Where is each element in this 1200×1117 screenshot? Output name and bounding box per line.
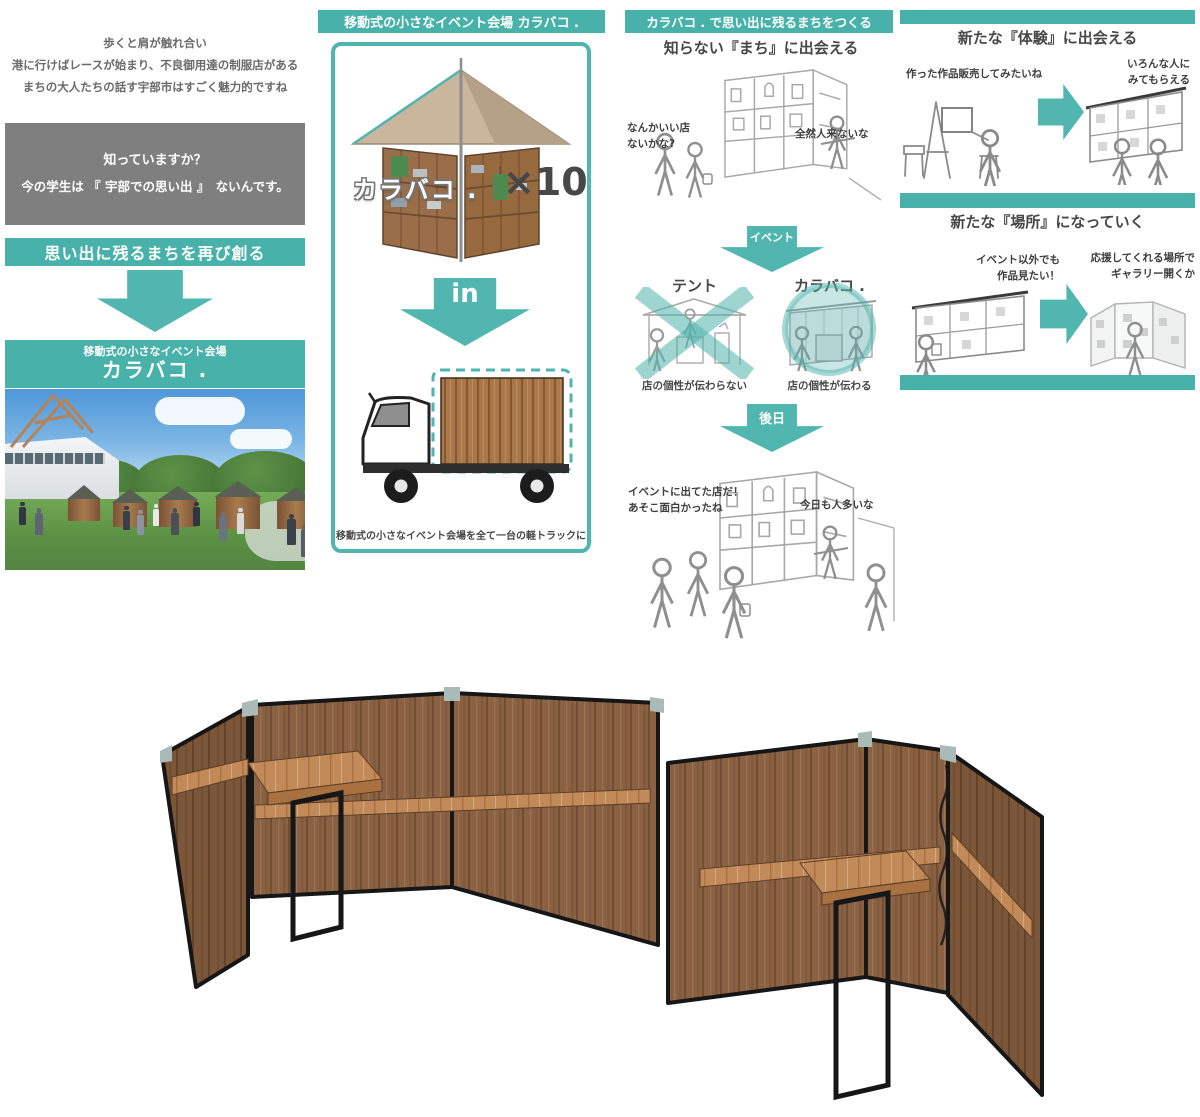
booth-sketch-experience <box>1082 80 1192 185</box>
gray-statement-panel: 知っていますか？ 今の学生は 『 宇部での思い出 』 ないんです。 <box>5 123 305 225</box>
product-tag: 移動式の小さなイベント会場 <box>84 345 227 359</box>
photo-person <box>301 529 305 557</box>
photo-booth <box>65 485 103 521</box>
photo-person <box>123 511 130 530</box>
statement-line: 今の学生は 『 宇部での思い出 』 ないんです。 <box>5 174 305 200</box>
photo-person <box>219 517 227 541</box>
column-story: カラバコ . で思い出に残るまちをつくる 知らない『まち』に出会える なんかいい… <box>622 0 900 648</box>
col4-bar-mid <box>900 193 1195 208</box>
bubble-no-visitors: 全然人来ないな <box>795 126 869 142</box>
col2-header: 移動式の小さなイベント会場 カラバコ . <box>318 10 605 33</box>
presentation-board: 歩くと肩が触れ合い 港に行けばレースが始まり、不良御用達の制服店がある まちの大… <box>0 0 1200 1117</box>
col4-bar-bottom <box>900 375 1195 390</box>
product-banner: 移動式の小さなイベント会場 カラバコ . <box>5 340 305 388</box>
column-problem: 歩くと肩が触れ合い 港に行けばレースが始まり、不良御用達の制服店がある まちの大… <box>0 0 310 575</box>
intro-line: 港に行けばレースが始まり、不良御用達の制服店がある <box>0 54 310 76</box>
arrow-later: 後日 <box>720 404 824 452</box>
truck-illustration <box>345 346 585 521</box>
arrow-right-icon <box>1040 284 1088 344</box>
karabako-circle-icon <box>767 283 892 379</box>
arrow-event: イベント <box>720 226 824 272</box>
arrow-later-label: 後日 <box>759 408 785 452</box>
truck-caption: 移動式の小さなイベント会場を全て一台の軽トラックに <box>335 527 587 542</box>
intro-text: 歩くと肩が触れ合い 港に行けばレースが始まり、不良御用達の制服店がある まちの大… <box>0 32 310 98</box>
tent-x-icon <box>632 287 757 379</box>
karabako-3d-render <box>0 655 1200 1117</box>
photo-person <box>137 515 144 535</box>
col3-header: カラバコ . で思い出に残るまちをつくる <box>625 10 893 33</box>
photo-person <box>287 519 296 545</box>
photo-person <box>237 513 244 534</box>
multiplier-label: ×10 <box>503 160 588 204</box>
intro-line: 歩くと肩が触れ合い <box>0 32 310 54</box>
photo-person <box>153 509 159 526</box>
bubble-outside-event: イベント以外でも 作品見たい！ <box>940 252 1060 285</box>
col3-subtitle: 知らない『まち』に出会える <box>622 37 900 58</box>
col4-bar-top <box>900 10 1195 24</box>
bubble-seen: いろんな人に みてもらえる <box>1090 56 1190 89</box>
arrow-right-icon <box>1038 84 1084 140</box>
coaster-structure <box>5 389 115 449</box>
statement-line: 知っていますか？ <box>5 148 305 174</box>
down-arrow-icon <box>97 270 213 332</box>
cloud <box>155 397 245 425</box>
kiosk-label: カラバコ . <box>353 170 478 205</box>
in-arrow-icon: in <box>400 278 530 346</box>
photo-person <box>19 507 26 525</box>
banner-remake-town: 思い出に残るまちを再び創る <box>5 238 305 266</box>
cloud <box>230 429 292 449</box>
karabako-caption: 店の個性が伝わる <box>767 378 892 393</box>
photo-person <box>171 513 179 535</box>
intro-line: まちの大人たちの話す宇部市はすごく魅力的ですね <box>0 76 310 98</box>
gallery-sketch <box>1085 288 1190 378</box>
title-place: 新たな『場所』になっていく <box>900 211 1195 232</box>
tent-caption: 店の個性が伝わらない <box>632 378 757 393</box>
photo-person <box>193 507 200 526</box>
venue-photo <box>5 389 305 570</box>
arrow-event-label: イベント <box>750 229 794 272</box>
bubble-want-shop: なんかいい店 ないかな? <box>627 120 690 153</box>
photo-booth <box>109 489 151 527</box>
tent-group: テント 店の個性が伝わらない <box>632 275 757 393</box>
product-name: カラバコ . <box>102 358 208 383</box>
bubble-sell: 作った作品販売してみたいね <box>906 66 1042 82</box>
column-future: 新たな『体験』に出会える 作った作品販売してみたいね いろんな人に み <box>900 0 1195 400</box>
easel-sketch <box>902 86 1022 186</box>
place-booth-sketch <box>908 288 1033 380</box>
column-karabako: 移動式の小さなイベント会場 カラバコ . <box>318 0 605 560</box>
photo-person <box>35 513 43 535</box>
in-label: in <box>451 279 478 346</box>
building-windows <box>5 453 105 464</box>
kiosk-frame-box: カラバコ . ×10 in <box>331 42 591 553</box>
bubble-gallery: 応援してくれる場所で ギャラリー開くか <box>1080 250 1195 283</box>
title-experience: 新たな『体験』に出会える <box>900 27 1195 48</box>
karabako-group: カラバコ . 店の個性が伝わる <box>767 275 892 393</box>
bubble-crowded: 今日も人多いな <box>800 497 874 513</box>
bubble-remember: イベントに出てた店だ！ あそこ面白かったね <box>628 484 744 517</box>
